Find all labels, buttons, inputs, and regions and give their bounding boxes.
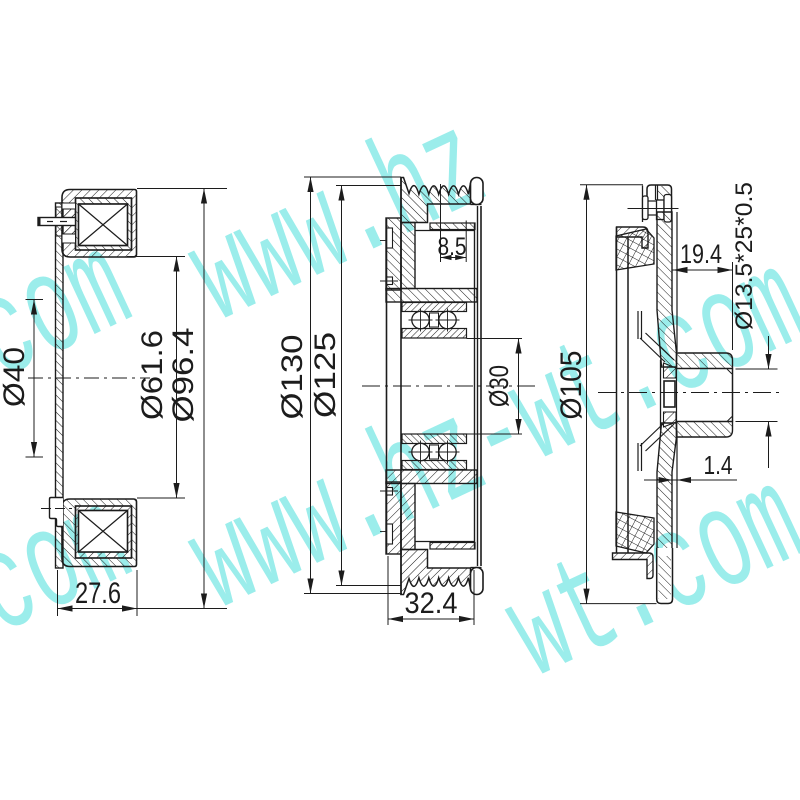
svg-text:Ø61.6: Ø61.6 (136, 330, 169, 420)
svg-text:Ø40: Ø40 (0, 347, 31, 407)
svg-text:Ø130: Ø130 (276, 335, 309, 420)
svg-text:32.4: 32.4 (405, 587, 458, 620)
svg-text:Ø105: Ø105 (555, 351, 588, 420)
svg-text:1.4: 1.4 (704, 450, 733, 480)
svg-text:Ø125: Ø125 (309, 332, 342, 418)
svg-text:19.4: 19.4 (680, 239, 722, 269)
svg-text:Ø96.4: Ø96.4 (167, 328, 200, 423)
svg-text:Ø30: Ø30 (484, 365, 514, 407)
svg-text:8.5: 8.5 (438, 233, 467, 261)
svg-text:Ø13.5*25*0.5: Ø13.5*25*0.5 (731, 182, 758, 330)
svg-text:27.6: 27.6 (75, 577, 121, 610)
